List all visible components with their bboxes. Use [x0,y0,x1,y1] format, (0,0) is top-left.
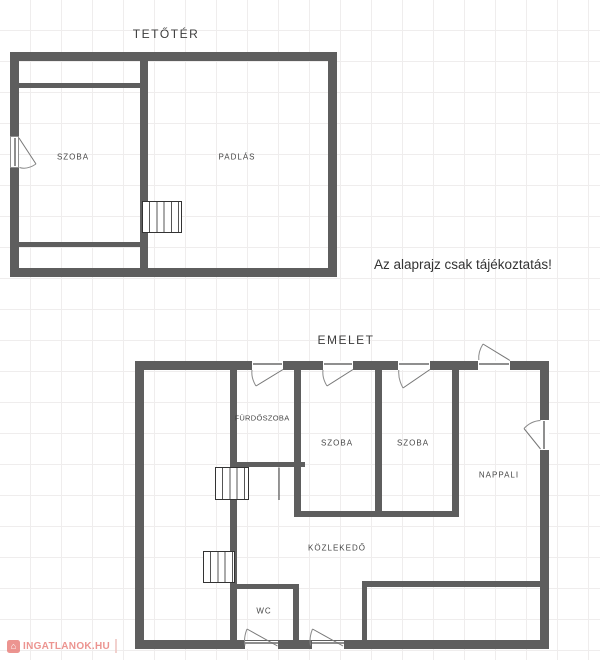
watermark-frame-line [115,639,117,653]
window-icon [398,361,430,370]
window-icon [10,136,19,168]
staircase-icon [203,551,235,583]
floorplan-page: TETŐTÉR SZOBA PADLÁS Az alaprajz csak tá… [0,0,600,660]
wall-bottomright-room-top [362,581,541,587]
watermark-text: INGATLANOK.HU [23,641,110,652]
window-glass-line [253,363,283,365]
floor-outer-wall-left [135,361,144,649]
attic-outer-wall-bottom [10,268,337,277]
attic-knee-wall-top [19,83,140,88]
window-swing-icon [19,138,36,168]
wall-wc-top [237,584,299,590]
watermark: ⌂ INGATLANOK.HU [7,638,117,654]
room-label-wc: WC [256,607,271,616]
wall-bedrooms-bottom [294,511,459,518]
attic-knee-wall-bottom [19,242,140,247]
wall-wc-right [293,584,299,641]
room-label-kozlekedo: KÖZLEKEDŐ [308,544,366,553]
room-label-szoba-1: SZOBA [321,439,353,448]
disclaimer-text: Az alaprajz csak tájékoztatás! [374,257,552,272]
attic-outer-wall-top [10,52,337,61]
room-label-szoba-2: SZOBA [397,439,429,448]
door-sill-line [245,642,278,644]
house-icon: ⌂ [7,640,20,653]
door-opening-icon [245,641,278,650]
window-swing-icon [323,370,353,387]
door-sill-line [312,642,344,644]
room-label-nappali: NAPPALI [479,471,519,480]
wall-bathroom-right [294,370,301,517]
window-icon [323,361,353,370]
door-opening-icon [312,641,344,650]
attic-plan-title: TETŐTÉR [133,27,200,41]
window-swing-icon [252,370,283,387]
floor-outer-wall-right [540,361,549,649]
window-swing-icon [479,344,510,361]
wall-bedroom2-right [452,370,459,511]
staircase-icon [142,201,182,233]
window-glass-line [14,138,16,166]
attic-outer-wall-right [328,52,337,277]
window-icon [252,361,284,370]
window-swing-icon [399,370,430,389]
window-icon [540,420,549,450]
window-glass-line [543,421,545,449]
window-glass-line [324,363,352,365]
room-label-szoba-attic: SZOBA [57,153,89,162]
room-label-furdoszoba: FÜRDŐSZOBA [234,414,289,423]
swing-arcs-layer [0,0,600,660]
wall-bottomright-room-left [362,581,368,640]
window-glass-line [399,363,429,365]
room-label-padlas: PADLÁS [219,153,256,162]
wall-main-vertical [230,370,237,640]
window-icon [478,361,510,370]
staircase-icon [215,467,249,500]
attic-dividing-wall [140,61,148,268]
window-swing-icon [524,421,541,450]
window-glass-line [479,363,509,365]
floor-plan-title: EMELET [317,333,374,347]
wall-between-bedrooms [375,370,382,511]
